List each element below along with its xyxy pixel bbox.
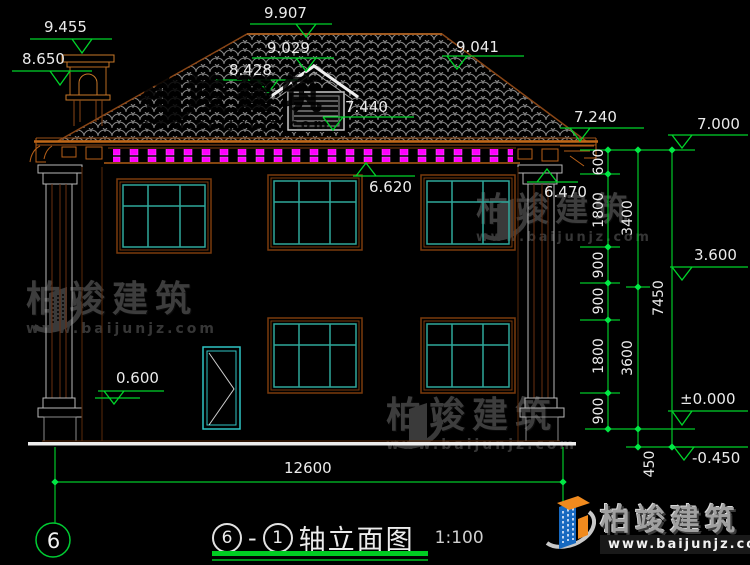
cad-elevation-sheet: 柏竣建筑 www.baijunjz.com 柏竣建筑 www.baijunjz.… <box>0 0 750 565</box>
axis-bubble: 6 <box>37 524 70 557</box>
elevation-label: 8.428 <box>229 63 272 78</box>
brand-logo-icon <box>538 491 596 557</box>
elevation-label: ±0.000 <box>680 392 736 407</box>
pilaster-right <box>518 165 564 441</box>
dim-label: 3400 <box>621 200 635 236</box>
eave-cornice <box>30 138 598 166</box>
dim-label: 1800 <box>592 338 606 374</box>
elevation-label: 8.650 <box>22 52 65 67</box>
elevation-label: 7.240 <box>574 110 617 125</box>
window-1f-center <box>268 318 362 393</box>
entry-door <box>203 347 240 429</box>
dim-label: 3600 <box>621 340 635 376</box>
elevation-label: 7.000 <box>697 117 740 132</box>
elevation-label: 9.029 <box>267 41 310 56</box>
title-dash: - <box>248 524 257 552</box>
brand-logo-name: 柏竣建筑 <box>600 495 740 539</box>
window-2f-right <box>421 175 515 250</box>
elevation-label: 6.620 <box>369 180 412 195</box>
dim-label-overall-width: 12600 <box>284 461 332 476</box>
elevation-label: -0.450 <box>692 451 740 466</box>
ground-line <box>28 442 576 446</box>
elevation-label: 0.600 <box>116 371 159 386</box>
elevation-label: 9.041 <box>456 40 499 55</box>
dim-label: 600 <box>592 149 606 176</box>
title-scale: 1:100 <box>435 528 484 548</box>
pilaster-left <box>38 165 82 441</box>
title-axis-end: 1 <box>263 523 293 553</box>
elevation-label: 9.907 <box>264 6 307 21</box>
dim-label: 900 <box>592 252 606 279</box>
title-underline-thin <box>212 559 428 561</box>
brand-logo-url: www.baijunjz.com <box>600 535 750 554</box>
window-2f-center <box>268 175 362 250</box>
window-2f-left <box>117 179 211 253</box>
window-1f-right <box>421 318 515 393</box>
elevation-label: 9.455 <box>44 20 87 35</box>
dim-label: 900 <box>592 398 606 425</box>
dim-label: 900 <box>592 288 606 315</box>
title-axis-start: 6 <box>212 523 242 553</box>
elevation-label: 6.470 <box>544 185 587 200</box>
elevation-drawing <box>0 0 750 565</box>
elevation-label: 3.600 <box>694 248 737 263</box>
dim-label: 7450 <box>652 280 666 316</box>
dim-label: 450 <box>643 451 657 478</box>
dim-label: 1800 <box>592 192 606 228</box>
title-underline-thick <box>212 551 428 556</box>
brand-logo: 柏竣建筑 www.baijunjz.com <box>538 491 750 563</box>
elevation-label: 7.440 <box>345 100 388 115</box>
